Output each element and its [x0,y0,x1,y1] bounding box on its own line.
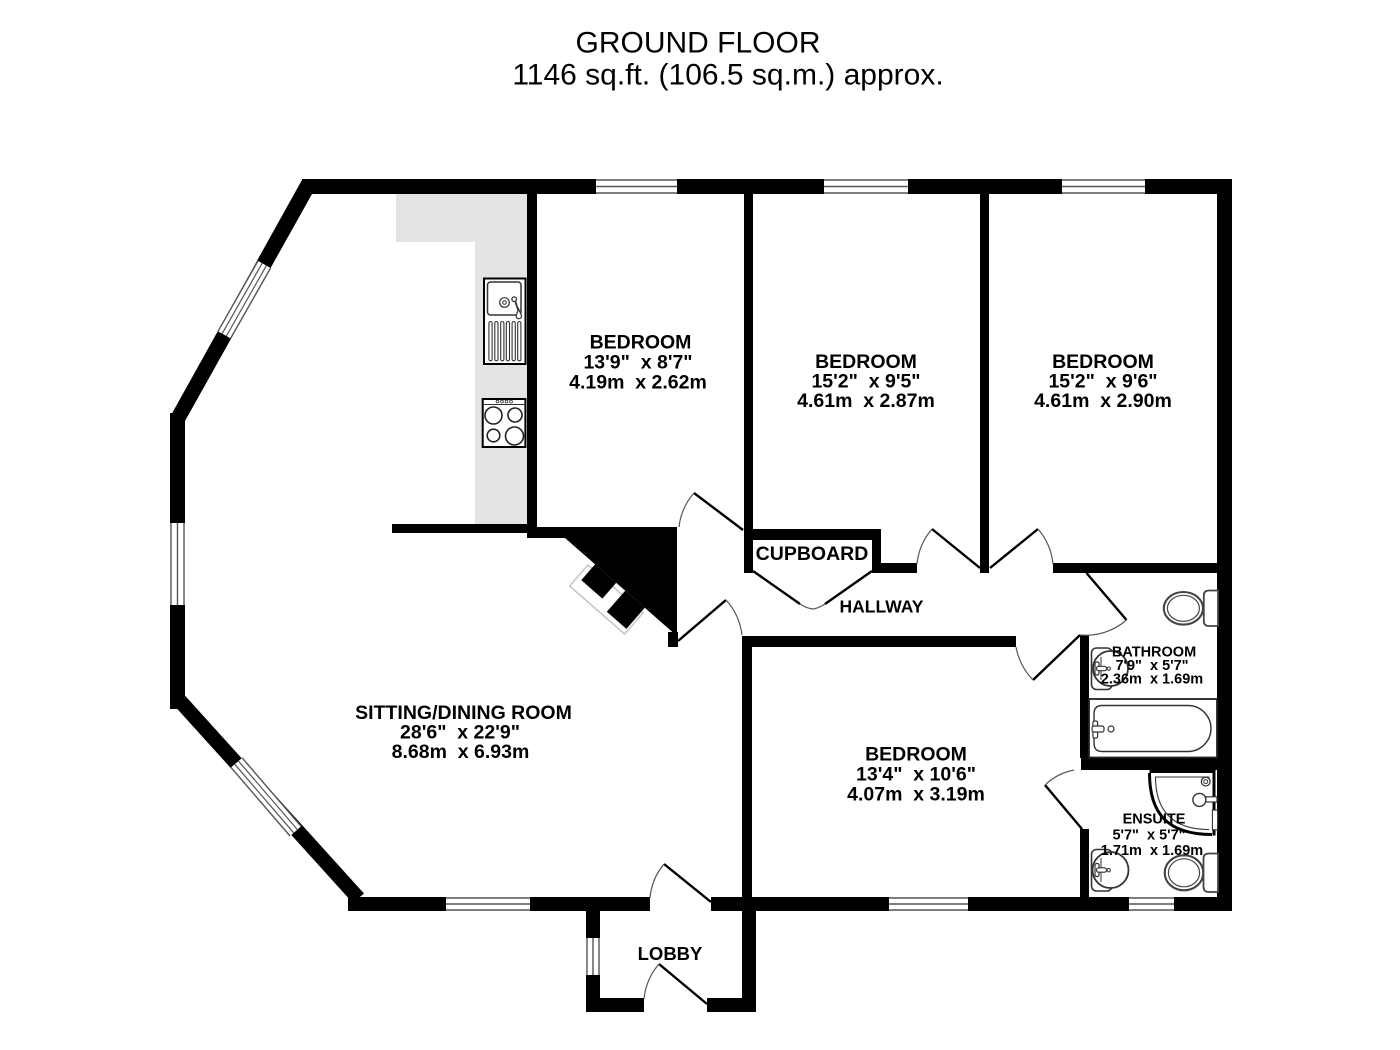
svg-text:2.36m x 1.69m: 2.36m x 1.69m [1101,672,1203,688]
svg-text:CUPBOARD: CUPBOARD [756,543,869,565]
svg-text:ENSUITE: ENSUITE [1123,812,1186,828]
svg-text:4.61m x 2.87m: 4.61m x 2.87m [797,390,935,412]
svg-text:HALLWAY: HALLWAY [840,597,924,617]
svg-text:BEDROOM: BEDROOM [590,332,692,354]
svg-text:LOBBY: LOBBY [638,943,703,964]
svg-text:4.61m x 2.90m: 4.61m x 2.90m [1034,390,1172,412]
svg-text:BEDROOM: BEDROOM [865,744,967,766]
svg-text:1146 sq.ft. (106.5 sq.m.) appr: 1146 sq.ft. (106.5 sq.m.) approx. [512,59,943,92]
svg-text:13'4" x 10'6": 13'4" x 10'6" [856,764,976,786]
svg-text:8.68m x 6.93m: 8.68m x 6.93m [392,741,530,763]
svg-text:4.19m x 2.62m: 4.19m x 2.62m [569,372,707,394]
svg-text:1.71m x 1.69m: 1.71m x 1.69m [1101,843,1203,859]
svg-text:4.07m x 3.19m: 4.07m x 3.19m [847,784,985,806]
svg-text:GROUND FLOOR: GROUND FLOOR [575,27,820,60]
svg-text:5'7" x 5'7": 5'7" x 5'7" [1112,828,1185,844]
svg-text:13'9" x 8'7": 13'9" x 8'7" [583,352,692,374]
